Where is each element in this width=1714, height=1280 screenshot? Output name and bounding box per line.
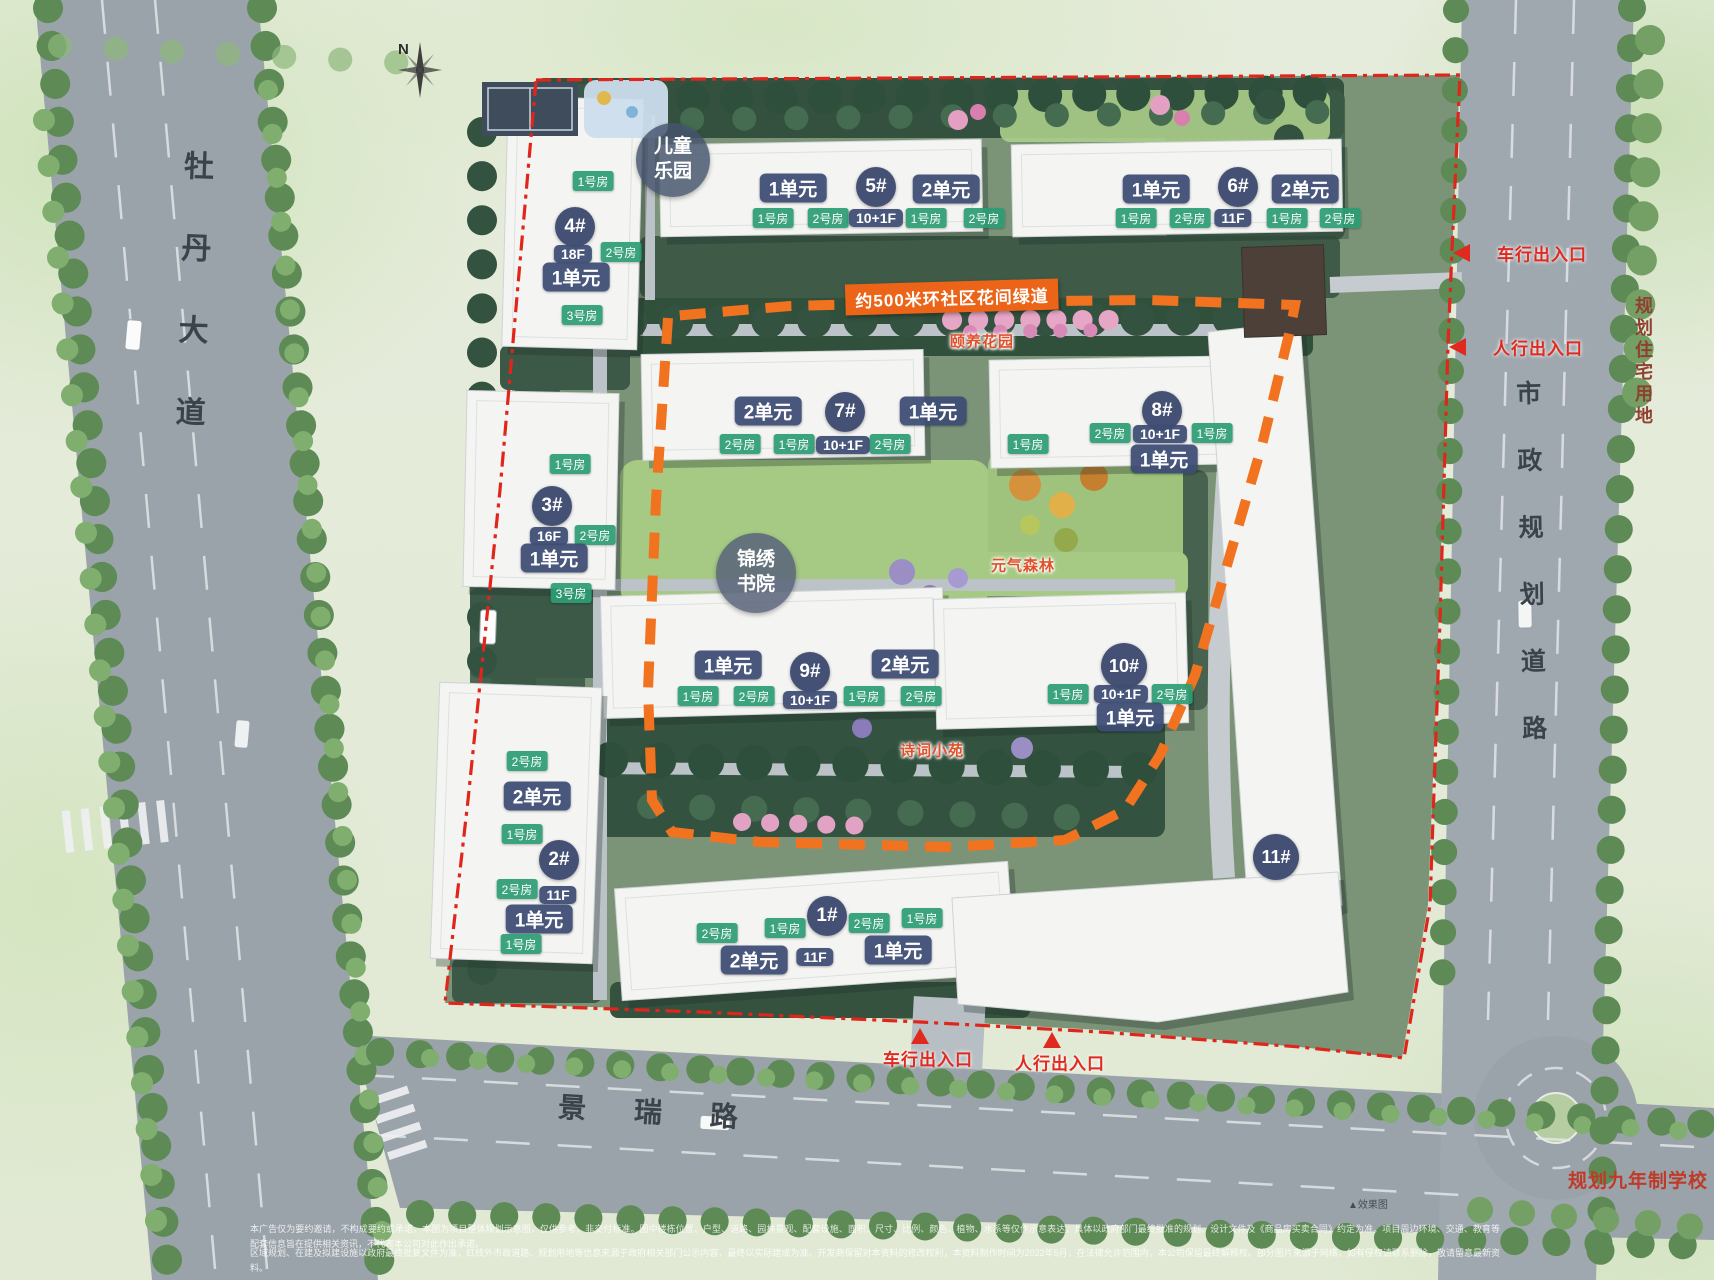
b1-room1a-tag: 1号房 — [765, 918, 806, 938]
render-note: ▲效果图 — [1348, 1196, 1388, 1211]
b7-room1b-tag: 1号房 — [1008, 434, 1049, 454]
study-garden-label: 锦绣 书院 — [716, 533, 796, 613]
b1-number-badge: 1# — [807, 896, 847, 936]
b2-number-badge: 2# — [539, 840, 579, 880]
poetry-court-label: 诗词小苑 — [900, 740, 964, 761]
b7-room2-tag: 2号房 — [720, 434, 761, 454]
greenway-banner: 约500米环社区花间绿道 — [845, 279, 1059, 316]
b1-unit2-pill: 2单元 — [721, 946, 788, 975]
b8-unit1-pill: 1单元 — [1131, 445, 1198, 474]
pedestrian-entrance-arrow-south-icon — [1043, 1032, 1061, 1048]
b11-number-badge: 11# — [1253, 834, 1299, 880]
b5-room2b-tag: 2号房 — [964, 208, 1005, 228]
b2-room2b-tag: 2号房 — [497, 879, 538, 899]
road-name-east: 市政规划道路 — [1508, 380, 1551, 783]
b1-room2a-tag: 2号房 — [697, 923, 738, 943]
b2-unit1-pill: 1单元 — [506, 905, 573, 934]
b8-floor-pill: 10+1F — [1133, 425, 1187, 443]
b2-room1b-tag: 1号房 — [501, 934, 542, 954]
compass: N — [398, 42, 409, 57]
vehicle-entrance-east-label: 车行出入口 — [1497, 241, 1587, 266]
b5-unit2-pill: 2单元 — [913, 175, 980, 204]
b7-unit1-pill: 1单元 — [900, 397, 967, 426]
b6-unit2-pill: 2单元 — [1272, 175, 1339, 204]
kids-park-label: 儿童 乐园 — [636, 123, 710, 197]
b5-room1-tag: 1号房 — [753, 208, 794, 228]
b9-room1b-tag: 1号房 — [844, 686, 885, 706]
b2-unit2-pill: 2单元 — [504, 782, 571, 811]
b10-room2-tag: 2号房 — [1152, 684, 1193, 704]
b2-room2a-tag: 2号房 — [507, 751, 548, 771]
b4-room3-tag: 3号房 — [562, 305, 603, 325]
b6-floor-pill: 11F — [1214, 209, 1251, 227]
wellness-garden-label: 颐养花园 — [950, 331, 1014, 352]
b7-room2b-tag: 2号房 — [870, 434, 911, 454]
b8-room2-tag: 2号房 — [1090, 423, 1131, 443]
b4-room1-tag: 1号房 — [573, 171, 614, 191]
pedestrian-entrance-arrow-east-icon — [1449, 338, 1466, 356]
pedestrian-entrance-east-label: 人行出入口 — [1493, 335, 1583, 360]
b1-unit1-pill: 1单元 — [865, 936, 932, 965]
b4-floor-pill: 18F — [554, 245, 592, 263]
zone-residential-label: 规划住宅用地 — [1630, 296, 1656, 428]
b7-room1-tag: 1号房 — [774, 434, 815, 454]
b7-number-badge: 7# — [825, 392, 865, 432]
b3-room1-tag: 1号房 — [550, 454, 591, 474]
b9-unit2-pill: 2单元 — [872, 650, 939, 679]
b4-room2-tag: 2号房 — [601, 242, 642, 262]
vehicle-entrance-arrow-south-icon — [911, 1028, 929, 1044]
b6-number-badge: 6# — [1218, 167, 1258, 207]
zone-school-label: 规划九年制学校 — [1568, 1166, 1708, 1193]
b3-room3-tag: 3号房 — [551, 583, 592, 603]
disclaimer-line-2: 区域规划、在建及拟建设施以政府最终批复文件为准，红线外市政道路、规划用地等信息来… — [250, 1246, 1500, 1277]
pedestrian-entrance-south-label: 人行出入口 — [1015, 1050, 1105, 1075]
b2-floor-pill: 11F — [539, 886, 576, 904]
b6-room2-tag: 2号房 — [1170, 208, 1211, 228]
master-plan-map: N 儿童 乐园 锦绣 书院 约500米环社区花间绿道 颐养花园 元气森林 诗词小… — [0, 0, 1714, 1280]
b5-number-badge: 5# — [856, 167, 896, 207]
b9-room2b-tag: 2号房 — [901, 686, 942, 706]
b7-floor-pill: 10+1F — [816, 436, 870, 454]
b1-floor-pill: 11F — [796, 948, 833, 966]
vehicle-entrance-arrow-east-icon — [1453, 244, 1470, 262]
b6-room1b-tag: 1号房 — [1267, 208, 1308, 228]
compass-star-icon — [398, 42, 442, 98]
b6-unit1-pill: 1单元 — [1123, 175, 1190, 204]
b6-room1-tag: 1号房 — [1116, 208, 1157, 228]
b5-floor-pill: 10+1F — [849, 209, 903, 227]
b9-number-badge: 9# — [790, 652, 830, 692]
vehicle-entrance-south-label: 车行出入口 — [883, 1046, 973, 1071]
b1-room1b-tag: 1号房 — [902, 908, 943, 928]
b10-room1-tag: 1号房 — [1048, 684, 1089, 704]
b10-number-badge: 10# — [1101, 643, 1147, 689]
b4-number-badge: 4# — [555, 207, 595, 247]
b9-room1-tag: 1号房 — [678, 686, 719, 706]
b10-floor-pill: 10+1F — [1094, 685, 1148, 703]
b2-room1a-tag: 1号房 — [502, 824, 543, 844]
b5-room1b-tag: 1号房 — [906, 208, 947, 228]
b3-unit1-pill: 1单元 — [521, 544, 588, 573]
b5-room2-tag: 2号房 — [808, 208, 849, 228]
b1-room2b-tag: 2号房 — [849, 913, 890, 933]
b7-unit2-pill: 2单元 — [735, 397, 802, 426]
b3-room2-tag: 2号房 — [575, 525, 616, 545]
b6-room2b-tag: 2号房 — [1320, 208, 1361, 228]
b3-number-badge: 3# — [532, 486, 572, 526]
b5-unit1-pill: 1单元 — [760, 174, 827, 203]
b10-unit1-pill: 1单元 — [1097, 703, 1164, 732]
b9-room2-tag: 2号房 — [734, 686, 775, 706]
b3-floor-pill: 16F — [530, 527, 568, 545]
b8-room1-tag: 1号房 — [1192, 423, 1233, 443]
b4-unit1-pill: 1单元 — [543, 263, 610, 292]
b9-floor-pill: 10+1F — [783, 691, 837, 709]
b9-unit1-pill: 1单元 — [695, 651, 762, 680]
vitality-forest-label: 元气森林 — [991, 555, 1055, 576]
